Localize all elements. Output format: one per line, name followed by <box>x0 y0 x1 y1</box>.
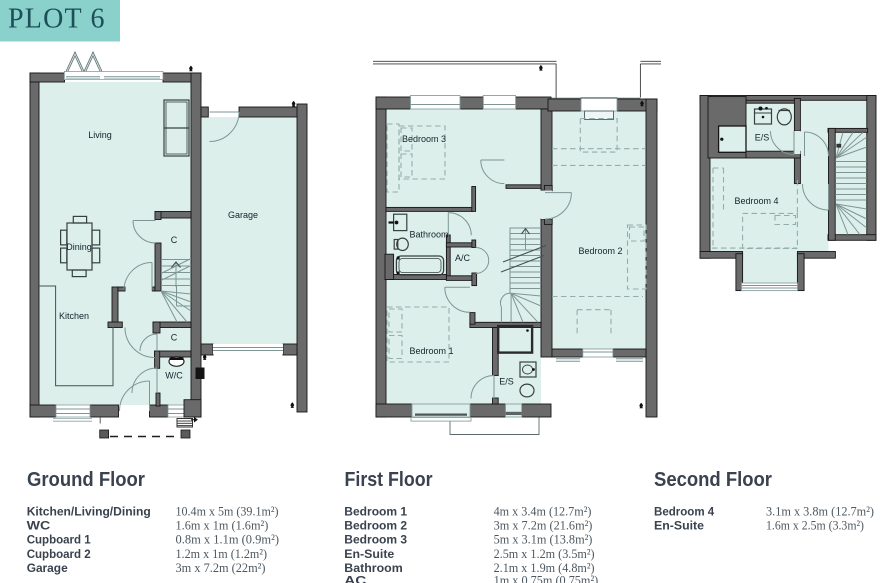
svg-text:10.4m x 5m (39.1m²): 10.4m x 5m (39.1m²) <box>176 504 279 519</box>
svg-text:1.6m x 1m (1.6m²): 1.6m x 1m (1.6m²) <box>176 518 269 533</box>
svg-text:1m x 0.75m (0.75m²): 1m x 0.75m (0.75m²) <box>494 573 599 583</box>
svg-text:3.1m x 3.8m (12.7m²): 3.1m x 3.8m (12.7m²) <box>766 504 874 519</box>
svg-text:0.8m x 1.1m (0.9m²): 0.8m x 1.1m (0.9m²) <box>176 532 280 547</box>
svg-text:W/C: W/C <box>165 371 183 381</box>
svg-text:E/S: E/S <box>755 133 770 143</box>
svg-text:Bathroom: Bathroom <box>409 230 448 240</box>
svg-text:1.2m x 1m (1.2m²): 1.2m x 1m (1.2m²) <box>176 546 268 561</box>
svg-text:2.5m x 1.2m (3.5m²): 2.5m x 1.2m (3.5m²) <box>494 546 595 561</box>
svg-text:AC: AC <box>344 574 366 583</box>
svg-text:Garage: Garage <box>27 561 68 575</box>
svg-text:WC: WC <box>27 519 51 533</box>
svg-text:Cupboard 1: Cupboard 1 <box>27 533 91 547</box>
svg-text:Bedroom 2: Bedroom 2 <box>344 519 407 533</box>
svg-text:Ground Floor: Ground Floor <box>27 469 145 491</box>
svg-text:Bedroom 3: Bedroom 3 <box>402 134 446 144</box>
svg-text:Bedroom 4: Bedroom 4 <box>734 196 778 206</box>
svg-text:5m x 3.1m (13.8m²): 5m x 3.1m (13.8m²) <box>494 532 593 547</box>
svg-text:4m x 3.4m (12.7m²): 4m x 3.4m (12.7m²) <box>494 504 592 519</box>
svg-text:A/C: A/C <box>455 253 471 263</box>
svg-text:3m x 7.2m (22m²): 3m x 7.2m (22m²) <box>176 560 266 575</box>
svg-text:Bedroom 1: Bedroom 1 <box>344 505 407 519</box>
svg-text:Bedroom 3: Bedroom 3 <box>344 533 407 547</box>
svg-text:C: C <box>171 333 178 343</box>
svg-text:First Floor: First Floor <box>345 469 433 491</box>
svg-text:Second Floor: Second Floor <box>654 469 772 491</box>
svg-text:Living: Living <box>88 130 112 140</box>
svg-text:PLOT 6: PLOT 6 <box>8 4 106 35</box>
svg-text:1.6m x 2.5m (3.3m²): 1.6m x 2.5m (3.3m²) <box>766 518 864 533</box>
svg-text:E/S: E/S <box>499 377 514 387</box>
svg-text:Dining: Dining <box>66 242 92 252</box>
svg-text:Bedroom 1: Bedroom 1 <box>409 346 453 356</box>
svg-text:3m x 7.2m (21.6m²): 3m x 7.2m (21.6m²) <box>494 518 593 533</box>
svg-text:Kitchen/Living/Dining: Kitchen/Living/Dining <box>27 505 151 519</box>
svg-text:Bedroom 2: Bedroom 2 <box>578 246 622 256</box>
svg-text:C: C <box>171 235 178 245</box>
svg-text:Cupboard 2: Cupboard 2 <box>27 547 91 561</box>
svg-text:Garage: Garage <box>228 210 258 220</box>
svg-text:Bedroom 4: Bedroom 4 <box>654 505 714 519</box>
svg-text:Kitchen: Kitchen <box>59 311 89 321</box>
svg-text:En-Suite: En-Suite <box>344 547 394 561</box>
svg-text:En-Suite: En-Suite <box>654 519 704 533</box>
